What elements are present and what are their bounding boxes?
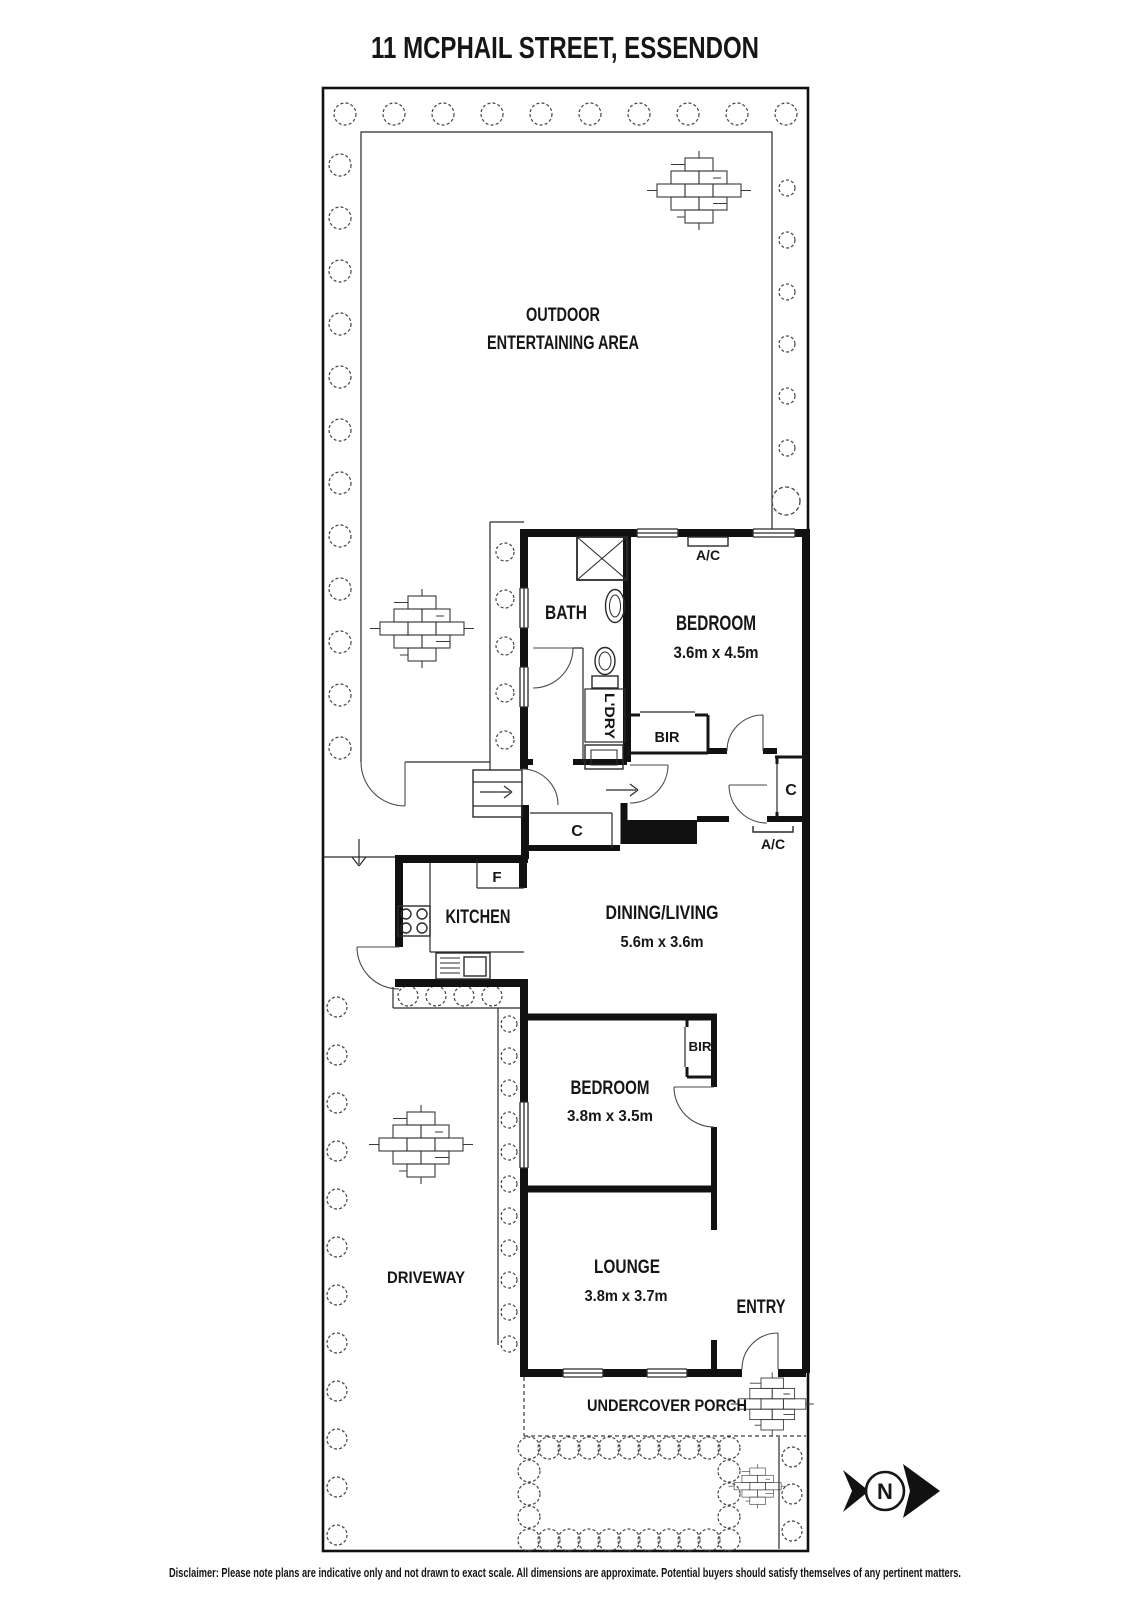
label-dining-dims: 5.6m x 3.6m	[621, 934, 704, 951]
bath-laundry-partition	[573, 648, 583, 762]
bath-basin-icon	[606, 590, 625, 623]
kitchen-counter	[430, 859, 524, 952]
gate-door-arc	[361, 762, 405, 806]
label-cupboard: C	[571, 823, 583, 840]
path-arrow-down-icon	[352, 839, 366, 866]
label-bedroom2-dims: 3.8m x 3.5m	[567, 1108, 653, 1125]
ac-unit	[753, 826, 793, 832]
toilet-icon	[592, 648, 618, 689]
ac-unit	[688, 537, 728, 546]
label-ac: A/C	[696, 547, 720, 563]
label-lounge: LOUNGE	[594, 1257, 660, 1278]
label-bath: BATH	[545, 603, 587, 624]
label-kitchen: KITCHEN	[446, 907, 511, 928]
brick-paving-icon	[647, 151, 751, 230]
page-title: 11 MCPHAIL STREET, ESSENDON	[371, 30, 759, 65]
chimney-block	[627, 820, 697, 844]
disclaimer: Disclaimer: Please note plans are indica…	[169, 1566, 961, 1580]
label-bir: BIR	[655, 730, 681, 746]
label-dining: DINING/LIVING	[606, 903, 719, 924]
label-outdoor-line2: ENTERTAINING AREA	[487, 333, 639, 354]
tree-icon	[772, 487, 800, 515]
label-bedroom1-dims: 3.6m x 4.5m	[674, 644, 759, 662]
label-bir: BIR	[689, 1039, 713, 1054]
label-cupboard: C	[785, 782, 797, 799]
label-driveway: DRIVEWAY	[387, 1268, 466, 1287]
label-fridge: F	[492, 869, 501, 886]
shower-icon	[577, 537, 627, 580]
floorplan-page: 11 MCPHAIL STREET, ESSENDON	[0, 0, 1131, 1600]
bedroom-walls	[524, 803, 717, 1189]
brick-paving-icon	[370, 589, 474, 668]
label-outdoor-line1: OUTDOOR	[526, 305, 600, 326]
north-compass: N	[843, 1464, 940, 1518]
label-lounge-dims: 3.8m x 3.7m	[585, 1288, 668, 1305]
outdoor-area-outline	[361, 132, 772, 762]
compass-n-label: N	[877, 1479, 893, 1504]
label-porch: UNDERCOVER PORCH	[587, 1396, 747, 1415]
yard-fence-lines	[323, 522, 524, 1345]
brick-paving-icon	[369, 1105, 473, 1184]
label-laundry: L'DRY	[602, 693, 618, 740]
kitchen-sink-icon	[436, 953, 490, 979]
label-bedroom2: BEDROOM	[571, 1078, 650, 1099]
label-entry: ENTRY	[737, 1297, 786, 1318]
garden-hedge-border	[518, 1437, 740, 1551]
label-bedroom1: BEDROOM	[676, 612, 756, 635]
floorplan-drawing: 11 MCPHAIL STREET, ESSENDON	[0, 0, 1131, 1600]
label-ac: A/C	[761, 836, 785, 852]
hall-arrow-icon	[606, 784, 638, 796]
compass-arrow-icon	[903, 1464, 940, 1518]
stairs	[473, 770, 522, 817]
